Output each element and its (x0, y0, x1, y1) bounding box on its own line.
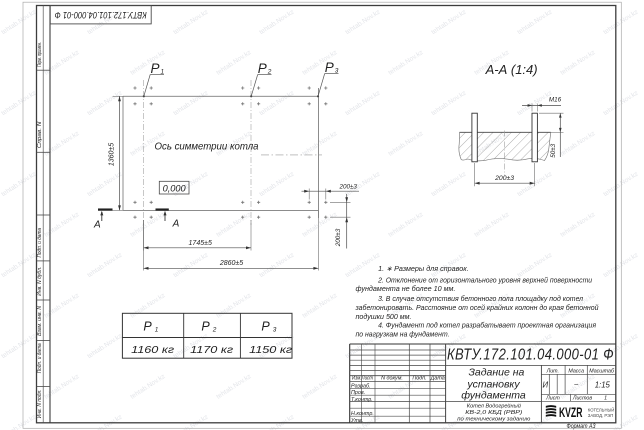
svg-text:Перв. примен.: Перв. примен. (37, 42, 43, 67)
svg-text:фундамента: фундамента (461, 389, 526, 401)
svg-text:Взам. инв. N: Взам. инв. N (37, 305, 43, 336)
svg-text:Задание на: Задание на (468, 367, 524, 379)
svg-text:tehtab.Nov.kz: tehtab.Nov.kz (86, 252, 123, 280)
svg-text:Лит.: Лит. (546, 368, 559, 374)
svg-text:А: А (172, 219, 180, 230)
svg-text:tehtab.Nov.kz: tehtab.Nov.kz (301, 211, 338, 239)
svg-text:Ось симметрии котла: Ось симметрии котла (155, 141, 259, 153)
svg-text:N докум.: N докум. (381, 376, 403, 382)
svg-text:Справ. N: Справ. N (37, 121, 43, 148)
svg-text:КВТУ.172.101.04.000-01 Ф: КВТУ.172.101.04.000-01 Ф (55, 10, 147, 20)
svg-text:Инв. N подл.: Инв. N подл. (37, 389, 43, 418)
svg-text:1: 1 (161, 68, 165, 75)
svg-text:2. Отклонение от горизонтал: 2. Отклонение от горизонтального уровня … (377, 275, 592, 284)
svg-text:1: 1 (155, 327, 159, 334)
svg-text:по нагрузкам на фундамент.: по нагрузкам на фундамент. (356, 329, 450, 338)
svg-text:И: И (543, 380, 549, 389)
svg-text:tehtab.Nov.kz: tehtab.Nov.kz (258, 90, 295, 118)
svg-text:Р: Р (261, 320, 270, 334)
svg-text:50±3: 50±3 (550, 143, 557, 157)
svg-text:tehtab.Nov.kz: tehtab.Nov.kz (129, 373, 166, 401)
svg-text:Утв.: Утв. (350, 418, 363, 424)
svg-text:1150 кг: 1150 кг (249, 344, 292, 356)
svg-text:tehtab.Nov.kz: tehtab.Nov.kz (344, 252, 381, 280)
svg-text:Пров.: Пров. (351, 390, 365, 396)
svg-text:2: 2 (267, 68, 272, 75)
svg-text:tehtab.Nov.kz: tehtab.Nov.kz (215, 292, 252, 320)
svg-text:tehtab.Nov.kz: tehtab.Nov.kz (387, 130, 424, 158)
svg-text:Листов: Листов (572, 396, 593, 402)
svg-text:tehtab.Nov.kz: tehtab.Nov.kz (215, 49, 252, 77)
svg-text:3. В случае отсутствия бет: 3. В случае отсутствия бетонного пола пл… (378, 294, 583, 303)
svg-text:tehtab.Nov.kz: tehtab.Nov.kz (0, 90, 37, 118)
svg-text:А-А (1:4): А-А (1:4) (485, 62, 538, 77)
svg-text:tehtab.Nov.kz: tehtab.Nov.kz (301, 373, 338, 401)
svg-text:tehtab.Nov.kz: tehtab.Nov.kz (258, 171, 295, 199)
svg-text:Р: Р (258, 61, 267, 76)
svg-text:tehtab.Nov.kz: tehtab.Nov.kz (430, 90, 467, 118)
svg-text:tehtab.Nov.kz: tehtab.Nov.kz (602, 90, 639, 118)
svg-text:0,000: 0,000 (163, 184, 187, 194)
svg-text:tehtab.Nov.kz: tehtab.Nov.kz (0, 9, 37, 37)
svg-text:tehtab.Nov.kz: tehtab.Nov.kz (387, 49, 424, 77)
svg-text:tehtab.Nov.kz: tehtab.Nov.kz (602, 252, 639, 280)
svg-text:Лист: Лист (545, 396, 560, 402)
svg-text:Р: Р (325, 60, 334, 75)
svg-text:tehtab.Nov.kz: tehtab.Nov.kz (430, 171, 467, 199)
svg-text:Дата: Дата (430, 376, 445, 382)
svg-text:А: А (93, 219, 101, 230)
svg-text:tehtab.Nov.kz: tehtab.Nov.kz (559, 49, 596, 77)
svg-text:tehtab.Nov.kz: tehtab.Nov.kz (301, 130, 338, 158)
svg-text:200±3: 200±3 (335, 228, 342, 247)
svg-text:tehtab.Nov.kz: tehtab.Nov.kz (172, 90, 209, 118)
svg-text:tehtab.Nov.kz: tehtab.Nov.kz (258, 9, 295, 37)
svg-text:tehtab.Nov.kz: tehtab.Nov.kz (43, 130, 80, 158)
svg-text:Масса: Масса (568, 368, 584, 374)
svg-text:tehtab.Nov.kz: tehtab.Nov.kz (43, 292, 80, 320)
svg-text:4. Фундамент под котел раз: 4. Фундамент под котел разрабатывает про… (378, 321, 596, 330)
svg-text:tehtab.Nov.kz: tehtab.Nov.kz (86, 333, 123, 361)
svg-text:забетонировать. Расстояние о: забетонировать. Расстояние от осей крайн… (355, 303, 599, 312)
svg-text:tehtab.Nov.kz: tehtab.Nov.kz (559, 211, 596, 239)
svg-text:Подп. и дата: Подп. и дата (37, 227, 43, 257)
svg-text:Р: Р (201, 320, 210, 334)
svg-text:tehtab.Nov.kz: tehtab.Nov.kz (387, 211, 424, 239)
svg-text:KVZR: KVZR (559, 405, 583, 420)
svg-text:КОТЕЛЬНЫЙ: КОТЕЛЬНЫЙ (588, 405, 615, 412)
svg-text:Масштаб: Масштаб (589, 368, 615, 374)
svg-text:tehtab.Nov.kz: tehtab.Nov.kz (86, 90, 123, 118)
svg-text:tehtab.Nov.kz: tehtab.Nov.kz (602, 9, 639, 37)
svg-text:tehtab.Nov.kz: tehtab.Nov.kz (215, 373, 252, 401)
svg-text:2860±5: 2860±5 (219, 260, 243, 267)
svg-text:КВТУ.172.101.04.000-01 Ф: КВТУ.172.101.04.000-01 Ф (447, 346, 614, 363)
svg-text:1745±5: 1745±5 (189, 240, 212, 247)
svg-text:tehtab.Nov.kz: tehtab.Nov.kz (258, 252, 295, 280)
svg-text:tehtab.Nov.kz: tehtab.Nov.kz (516, 9, 553, 37)
svg-text:ЗАВОД, РЭП: ЗАВОД, РЭП (588, 413, 614, 418)
svg-text:tehtab.Nov.kz: tehtab.Nov.kz (473, 211, 510, 239)
svg-text:tehtab.Nov.kz: tehtab.Nov.kz (86, 414, 123, 430)
svg-text:Т.контр.: Т.контр. (351, 397, 373, 403)
svg-text:tehtab.Nov.kz: tehtab.Nov.kz (301, 292, 338, 320)
svg-text:tehtab.Nov.kz: tehtab.Nov.kz (344, 90, 381, 118)
svg-text:3: 3 (335, 67, 339, 74)
svg-text:Инв. N дубл.: Инв. N дубл. (37, 267, 43, 296)
svg-text:200±3: 200±3 (338, 183, 357, 190)
svg-text:tehtab.Nov.kz: tehtab.Nov.kz (172, 252, 209, 280)
svg-text:Р: Р (143, 320, 152, 334)
svg-text:Изм.Лист: Изм.Лист (352, 376, 373, 382)
svg-text:М16: М16 (549, 96, 562, 103)
svg-text:подушки 500 мм.: подушки 500 мм. (356, 312, 412, 321)
svg-text:по техническому заданию: по техническому заданию (457, 417, 531, 423)
svg-text:Разраб.: Разраб. (351, 383, 371, 389)
svg-text:tehtab.Nov.kz: tehtab.Nov.kz (172, 9, 209, 37)
svg-text:3: 3 (273, 327, 277, 334)
svg-text:1. ∗ Размеры для справок.: 1. ∗ Размеры для справок. (378, 264, 469, 273)
svg-text:1:15: 1:15 (595, 380, 611, 389)
svg-text:КВ-2,0 КБД (РВР): КВ-2,0 КБД (РВР) (465, 410, 522, 416)
svg-text:tehtab.Nov.kz: tehtab.Nov.kz (172, 414, 209, 430)
svg-text:2: 2 (212, 327, 217, 334)
svg-text:1360±5: 1360±5 (108, 143, 115, 166)
svg-text:tehtab.Nov.kz: tehtab.Nov.kz (129, 211, 166, 239)
svg-text:tehtab.Nov.kz: tehtab.Nov.kz (344, 9, 381, 37)
svg-text:Подп. и дата: Подп. и дата (37, 343, 43, 374)
svg-text:1: 1 (604, 396, 607, 402)
svg-text:tehtab.Nov.kz: tehtab.Nov.kz (430, 9, 467, 37)
svg-text:фундамента не более 10 мм.: фундамента не более 10 мм. (356, 284, 456, 293)
svg-text:Н.контр.: Н.контр. (351, 411, 374, 417)
svg-text:Подп.: Подп. (412, 376, 426, 382)
svg-text:1170 кг: 1170 кг (190, 344, 233, 356)
svg-text:tehtab.Nov.kz: tehtab.Nov.kz (215, 211, 252, 239)
svg-text:tehtab.Nov.kz: tehtab.Nov.kz (129, 292, 166, 320)
svg-text:1160 кг: 1160 кг (131, 344, 174, 356)
svg-text:tehtab.Nov.kz: tehtab.Nov.kz (0, 171, 37, 199)
svg-text:tehtab.Nov.kz: tehtab.Nov.kz (43, 49, 80, 77)
svg-text:Формат А3: Формат А3 (567, 424, 597, 430)
svg-text:tehtab.Nov.kz: tehtab.Nov.kz (602, 171, 639, 199)
svg-text:tehtab.Nov.kz: tehtab.Nov.kz (0, 414, 37, 430)
svg-text:Котел Водогрейный: Котел Водогрейный (467, 402, 522, 409)
svg-text:tehtab.Nov.kz: tehtab.Nov.kz (559, 130, 596, 158)
svg-text:Р: Р (151, 61, 160, 76)
svg-text:tehtab.Nov.kz: tehtab.Nov.kz (86, 171, 123, 199)
svg-text:tehtab.Nov.kz: tehtab.Nov.kz (258, 414, 295, 430)
svg-text:200±3: 200±3 (494, 175, 514, 182)
svg-text:tehtab.Nov.kz: tehtab.Nov.kz (0, 333, 37, 361)
svg-text:–: – (573, 381, 578, 388)
svg-text:tehtab.Nov.kz: tehtab.Nov.kz (0, 252, 37, 280)
